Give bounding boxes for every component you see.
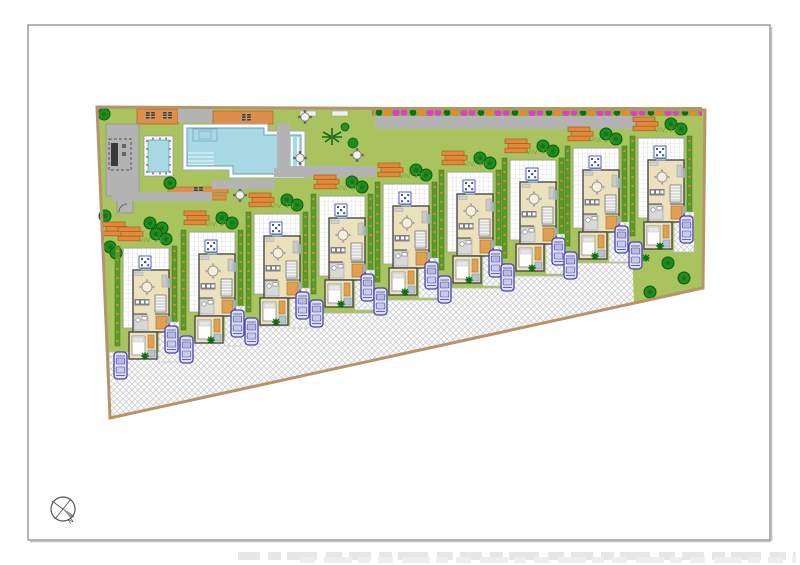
villa-label: VIV. 16 xyxy=(463,161,486,168)
villa-label: VIV. 18 xyxy=(335,185,358,192)
sun-deck xyxy=(137,109,178,124)
villa-plot-21: VIV. 21 xyxy=(114,227,179,379)
villa-label: VIV. 21 xyxy=(139,237,162,244)
planter-white xyxy=(332,111,348,116)
access-path xyxy=(274,168,302,177)
kids-pool xyxy=(144,136,173,176)
villa-plot-18: VIV. 18 xyxy=(310,175,375,327)
access-path xyxy=(212,180,274,189)
villa-plot-14: VIV. 14 xyxy=(564,127,629,279)
bush xyxy=(341,123,349,131)
pool-path xyxy=(178,109,213,122)
bush xyxy=(348,138,358,148)
villa-plot-13: VIV. 13 xyxy=(629,117,694,269)
paved-slab xyxy=(106,124,139,196)
upper-path xyxy=(375,116,651,129)
villa-label: VIV. 14 xyxy=(589,137,612,144)
villa-label: VIV. 15 xyxy=(526,149,549,156)
villa-label: VIV. 17 xyxy=(399,173,422,180)
villa-plot-19: VIV. 19 xyxy=(245,193,310,345)
villa-plot-20: VIV. 20 xyxy=(180,211,245,363)
site-plan-drawing: VIV. 21 VIV. 20 VIV. 19 VIV. 18 VIV. 17 … xyxy=(0,0,800,565)
faint-artifact-text xyxy=(238,556,796,560)
architectural-sheet: VIV. 21 VIV. 20 VIV. 19 VIV. 18 VIV. 17 … xyxy=(0,0,800,565)
villa-plot-17: VIV. 17 xyxy=(374,163,439,315)
villa-label: VIV. 19 xyxy=(270,203,293,210)
villa-plot-16: VIV. 16 xyxy=(438,151,503,303)
garden-path xyxy=(277,123,290,168)
villa-plot-15: VIV. 15 xyxy=(501,139,566,291)
villa-label: VIV. 20 xyxy=(205,221,228,228)
access-path xyxy=(112,192,212,201)
villa-label: VIV. 13 xyxy=(654,127,677,134)
pool-building-core xyxy=(111,143,118,166)
